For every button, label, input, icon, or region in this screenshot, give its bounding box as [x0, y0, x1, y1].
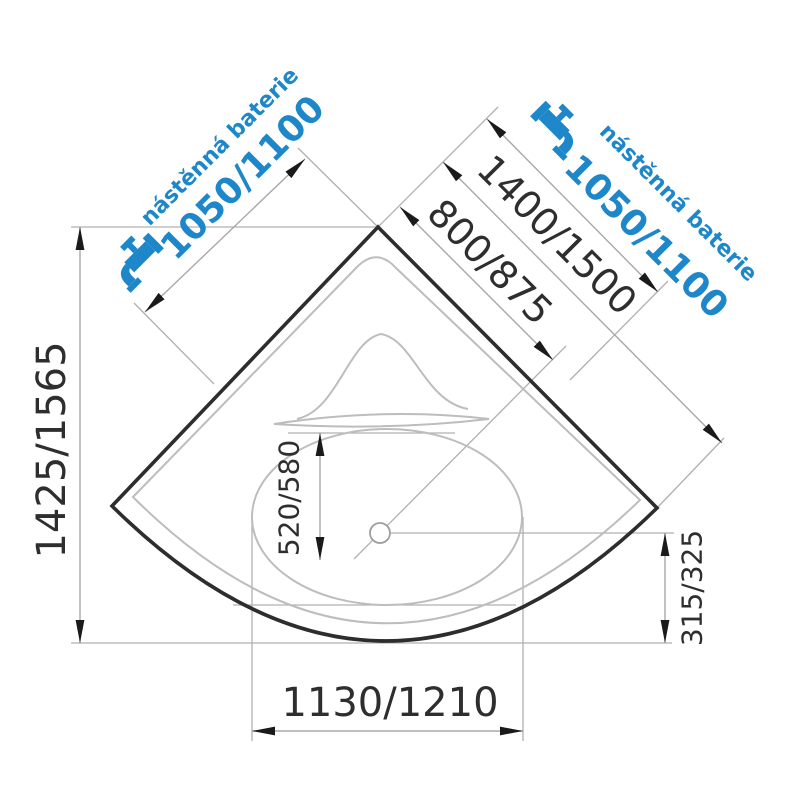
ext-right-corner	[657, 438, 724, 508]
drain-symbol	[370, 523, 390, 543]
drawing-svg: 1425/1565 1130/1210 520/580 315/325 800/…	[0, 0, 800, 800]
tub-inner-rim	[133, 257, 640, 623]
ext-left-faucet	[134, 303, 214, 384]
ext-apex-upleft	[298, 148, 378, 227]
dim-front-width-value: 1130/1210	[281, 680, 498, 726]
dim-basin-depth-value: 520/580	[273, 440, 306, 556]
headrest-curve	[297, 334, 468, 419]
bathtub-dimension-drawing: 1425/1565 1130/1210 520/580 315/325 800/…	[0, 0, 800, 800]
bathtub-shape	[112, 227, 657, 641]
dimension-labels: 1425/1565 1130/1210 520/580 315/325 800/…	[29, 63, 762, 726]
dim-overall-depth-value: 1425/1565	[29, 341, 75, 558]
dim-drain-to-front-value: 315/325	[676, 530, 709, 646]
